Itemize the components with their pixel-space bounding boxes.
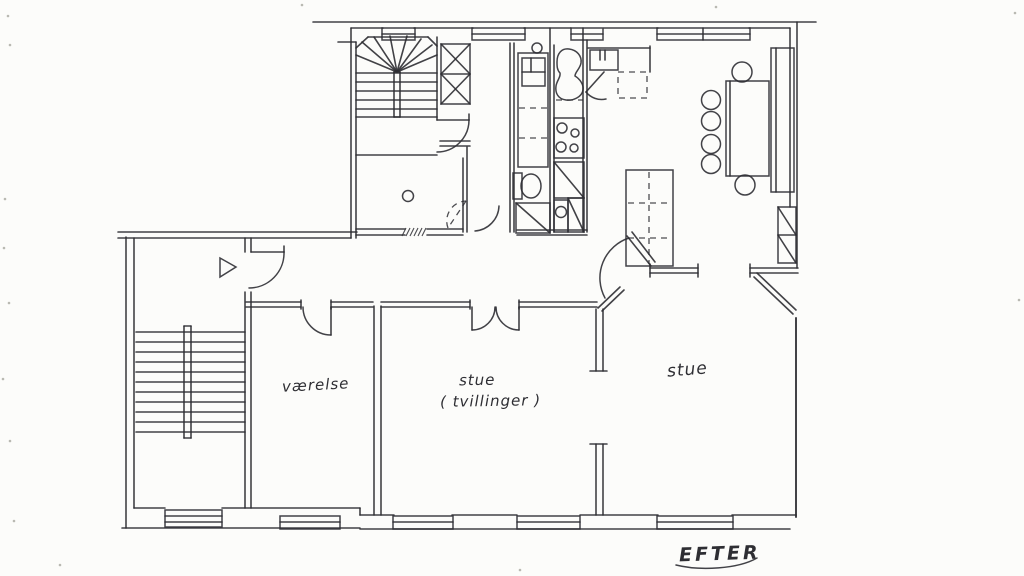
fixture-circle [702, 91, 721, 110]
hatch-line [418, 228, 422, 236]
room-label-stue-tvillinger-line2: ( tvillinger ) [440, 391, 541, 411]
room-label-stue: stue [666, 358, 708, 381]
wall-line [586, 72, 604, 92]
wall-line [778, 235, 796, 263]
plan-path [220, 258, 236, 277]
paper-speck [9, 440, 12, 443]
paper-speck [9, 44, 12, 47]
fixture-rect [590, 50, 618, 70]
paper-speck [3, 247, 6, 250]
plan-path [437, 120, 469, 152]
room-label-vaerelse: værelse [282, 374, 350, 396]
fixture-circle [702, 112, 721, 131]
fixture-circle [556, 207, 567, 218]
fixture-circle [556, 142, 566, 152]
paper-speck [4, 198, 7, 201]
fixture-circle [570, 144, 578, 152]
paper-speck [519, 569, 522, 572]
plan-caption-efter: EFTER [679, 542, 761, 567]
wall-line [568, 198, 584, 232]
room-label-stue-tvillinger-line1: stue [459, 371, 496, 390]
paper-speck [301, 4, 304, 7]
hatch-line [422, 228, 426, 236]
wall-line [778, 207, 796, 235]
dashed-fixture-rect [618, 72, 647, 98]
paper-speck [59, 564, 62, 567]
plan-path [249, 252, 284, 288]
fixture-circle [702, 135, 721, 154]
plan-path [303, 307, 331, 335]
plan-path [496, 307, 519, 330]
paper-speck [13, 520, 16, 523]
wall-line [554, 162, 584, 198]
paper-speck [1018, 299, 1021, 302]
paper-speck [715, 6, 718, 9]
plan-path [556, 49, 583, 100]
fixture-circle [571, 129, 579, 137]
paper-speck [2, 378, 5, 381]
wall-line [757, 273, 796, 310]
plan-path [472, 307, 495, 330]
paper-speck [1014, 12, 1017, 15]
paper-speck [7, 15, 10, 18]
fixture-circle [403, 191, 414, 202]
fixture-rect [726, 81, 769, 176]
plan-path [600, 238, 629, 298]
paper-speck [8, 302, 11, 305]
plan-path [475, 206, 499, 231]
wall-line [397, 36, 407, 72]
wall-line [754, 277, 793, 314]
fixture-rect [554, 200, 568, 232]
fixture-circle [532, 43, 542, 53]
plan-path [586, 92, 606, 99]
hatch-line [414, 228, 418, 236]
fixture-circle [735, 175, 755, 195]
fixture-circle [557, 123, 567, 133]
wall-line [516, 203, 550, 233]
toilet-bowl [521, 174, 541, 198]
fixture-circle [702, 155, 721, 174]
floor-plan-drawing [0, 0, 1024, 576]
floor-plan-canvas: værelse stue ( tvillinger ) stue EFTER [0, 0, 1024, 576]
fixture-circle [732, 62, 752, 82]
hatch-line [410, 228, 414, 236]
hatch-line [406, 228, 410, 236]
fixture-rect [165, 510, 222, 527]
